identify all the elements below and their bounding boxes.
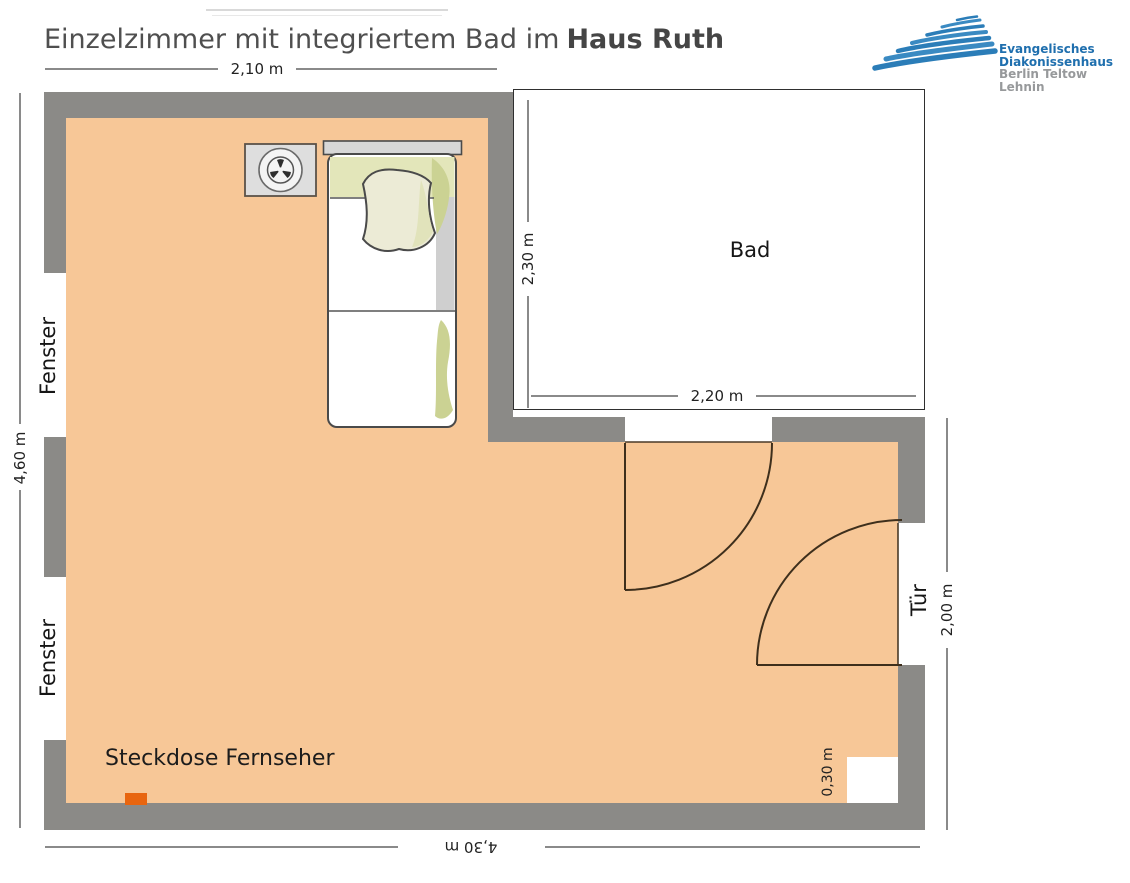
dim-label-niche: 0,30 m — [792, 736, 864, 808]
wall-under-bathroom-right — [772, 417, 925, 442]
page-title: Einzelzimmer mit integriertem Bad imHaus… — [44, 24, 724, 55]
logo-line-1: Evangelisches — [999, 43, 1130, 56]
dim-line-bottom — [545, 846, 920, 848]
dim-line-bottom — [45, 846, 398, 848]
window-label-lower: Fenster — [12, 622, 84, 694]
dim-line-bath-height — [527, 296, 529, 408]
page-title-emphasis: Haus Ruth — [566, 24, 724, 55]
wall-left-lower — [44, 740, 66, 803]
dim-line-bath-width — [756, 395, 916, 397]
wall-under-bathroom-left — [484, 417, 625, 442]
entry-door-label: Tür — [883, 564, 955, 636]
dim-label-bath-width: 2,20 m — [677, 386, 757, 406]
dim-label-bottom: 4,30 m — [435, 811, 507, 883]
bathroom-label: Bad — [700, 236, 800, 264]
wall-right-below-door — [898, 665, 925, 803]
floor-plan-page: Einzelzimmer mit integriertem Bad imHaus… — [0, 0, 1130, 883]
dim-label-left: 4,60 m — [0, 422, 56, 494]
wall-right-above-door — [898, 442, 925, 523]
wall-left-upper — [44, 92, 66, 273]
dim-line-right — [946, 418, 948, 572]
diakonissenhaus-logo-wordmark: Evangelisches Diakonissenhaus Berlin Tel… — [999, 43, 1130, 93]
logo-line-3: Berlin Teltow Lehnin — [999, 68, 1130, 93]
window-label-upper: Fenster — [12, 320, 84, 392]
dim-line-top — [296, 68, 497, 70]
dim-line-bath-height — [527, 100, 529, 222]
dim-label-bath-height: 2,30 m — [492, 223, 564, 295]
dim-line-right — [946, 648, 948, 830]
dim-line-bath-width — [531, 395, 678, 397]
page-title-text: Einzelzimmer mit integriertem Bad im — [44, 24, 559, 55]
dim-label-top: 2,10 m — [217, 59, 297, 79]
wall-top — [44, 92, 493, 118]
room-floor-main — [66, 118, 488, 803]
dim-line-top — [45, 68, 218, 70]
diakonissenhaus-logo-icon — [872, 14, 1002, 76]
tv-socket-marker — [125, 793, 147, 805]
tv-socket-label: Steckdose Fernseher — [105, 746, 335, 771]
scan-artifact-line — [212, 15, 442, 16]
scan-artifact-line — [206, 9, 448, 11]
